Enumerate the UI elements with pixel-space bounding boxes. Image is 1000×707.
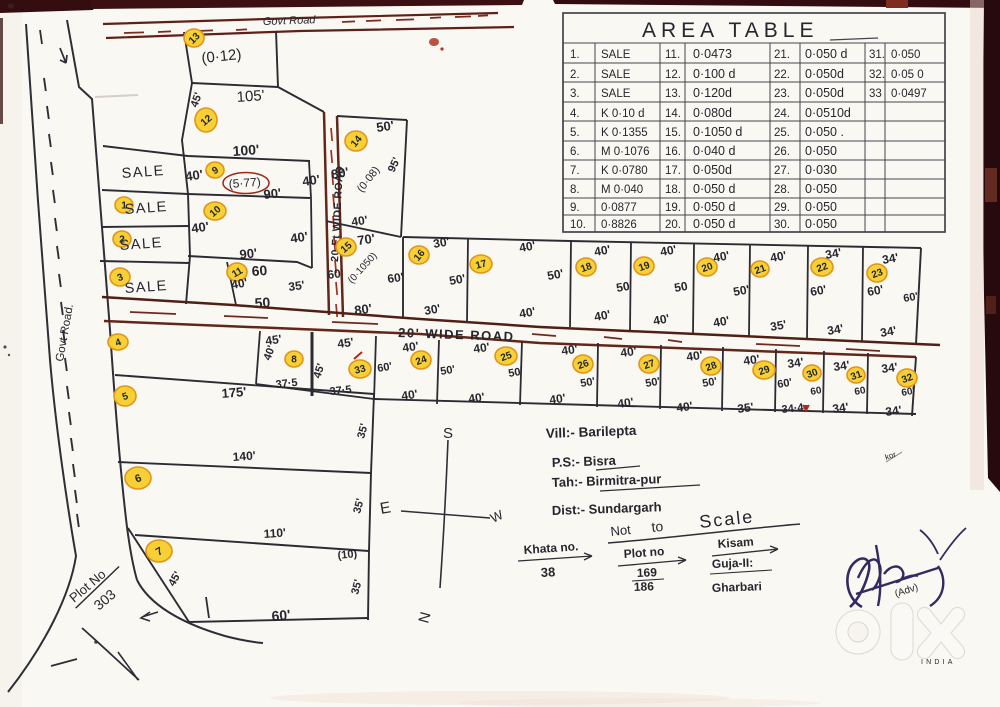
svg-text:0·050d: 0·050d [805,67,844,81]
svg-text:21.: 21. [774,49,790,61]
svg-text:0·05 0: 0·05 0 [891,69,924,81]
svg-text:60': 60' [866,282,885,299]
svg-text:INDIA: INDIA [921,659,956,666]
svg-text:28.: 28. [774,184,790,196]
svg-text:20.: 20. [665,219,681,231]
svg-text:35': 35' [287,278,305,294]
svg-text:P.S:- Bisra: P.S:- Bisra [552,453,617,470]
svg-text:0·050 .: 0·050 . [805,125,844,139]
svg-text:50': 50' [448,271,467,288]
svg-text:AREA TABLE: AREA TABLE [642,19,818,42]
svg-text:1.: 1. [570,49,580,61]
svg-text:0·100 d: 0·100 d [693,67,735,81]
svg-text:40': 40' [769,248,788,265]
svg-text:50: 50 [673,279,689,295]
svg-text:40': 40' [659,242,678,259]
svg-text:30.: 30. [774,219,790,231]
svg-text:18.: 18. [665,184,681,196]
svg-text:40': 40' [472,340,490,356]
svg-text:2.: 2. [570,69,580,81]
svg-text:35': 35' [736,400,754,416]
svg-text:0·0473: 0·0473 [693,47,732,61]
svg-text:40': 40' [560,342,578,358]
svg-text:15.: 15. [665,127,681,139]
svg-text:105': 105' [236,87,265,106]
svg-text:50': 50' [546,266,565,283]
svg-text:14.: 14. [665,108,681,120]
svg-text:70': 70' [356,231,375,248]
svg-text:SALE: SALE [121,163,165,182]
svg-text:60': 60' [901,386,916,399]
svg-text:34·4: 34·4 [781,402,805,416]
svg-text:Plot no: Plot no [623,544,665,561]
svg-text:40': 40' [518,304,537,321]
svg-text:140': 140' [232,448,256,464]
svg-text:60': 60' [809,282,828,299]
svg-text:50': 50' [375,118,394,135]
svg-text:40': 40' [518,238,537,255]
svg-text:SALE: SALE [601,49,631,61]
svg-text:34': 34' [786,355,804,371]
svg-text:35': 35' [769,317,788,334]
svg-text:K 0·10 d: K 0·10 d [601,108,644,120]
svg-text:175': 175' [221,384,247,401]
svg-text:38: 38 [540,564,555,580]
svg-text:40': 40' [619,344,637,360]
svg-text:29.: 29. [774,202,790,214]
svg-text:Kisam: Kisam [717,535,754,551]
svg-text:16.: 16. [665,146,681,158]
svg-text:22.: 22. [774,69,790,81]
svg-text:SALE: SALE [601,69,631,81]
svg-text:90': 90' [239,245,258,262]
svg-text:0·050: 0·050 [805,200,837,214]
svg-text:26.: 26. [774,146,790,158]
svg-text:40': 40' [190,219,209,236]
svg-text:0·050: 0·050 [805,182,837,196]
svg-text:40': 40' [301,172,320,189]
svg-text:60': 60' [386,270,404,286]
svg-text:12.: 12. [665,69,681,81]
svg-text:40': 40' [685,348,703,364]
svg-text:40': 40' [467,390,485,406]
svg-text:M 0·1076: M 0·1076 [601,146,650,158]
svg-text:6.: 6. [570,146,580,158]
svg-text:(10): (10) [337,548,358,562]
svg-text:80': 80' [330,164,350,182]
svg-text:24.: 24. [774,108,790,120]
svg-text:0·030: 0·030 [805,163,837,177]
svg-text:0·050: 0·050 [805,217,837,231]
svg-text:0·040 d: 0·040 d [693,144,735,158]
svg-text:40': 40' [548,391,566,407]
svg-text:Vill:- Barilepta: Vill:- Barilepta [546,423,637,441]
svg-text:50: 50 [615,279,631,295]
svg-text:13.: 13. [665,88,681,100]
svg-text:40': 40' [400,387,418,403]
svg-text:37·5: 37·5 [329,384,352,398]
svg-text:S: S [443,425,453,442]
svg-text:40': 40' [616,395,634,411]
svg-text:8: 8 [291,355,297,366]
svg-text:23.: 23. [774,88,790,100]
svg-text:110': 110' [263,525,286,541]
svg-text:Guja-II:: Guja-II: [712,556,754,571]
svg-text:40': 40' [712,313,731,330]
svg-text:0·1050 d: 0·1050 d [693,125,742,139]
svg-text:40': 40' [652,311,671,328]
svg-text:33: 33 [869,88,882,100]
svg-text:40': 40' [350,213,368,229]
svg-text:0·050: 0·050 [805,144,837,158]
svg-text:10.: 10. [570,219,586,231]
svg-text:169: 169 [637,565,658,580]
svg-text:50': 50' [732,282,751,299]
svg-text:0·8826: 0·8826 [601,219,637,231]
svg-text:0·0877: 0·0877 [601,202,637,214]
svg-text:0·050 d: 0·050 d [693,217,735,231]
svg-text:0·0497: 0·0497 [891,88,927,100]
svg-text:60: 60 [251,262,268,279]
svg-text:SALE: SALE [601,88,631,100]
svg-text:34': 34' [880,360,898,376]
svg-text:5.: 5. [570,127,580,139]
svg-text:40': 40' [289,229,308,246]
svg-text:Govt Road: Govt Road [263,14,317,28]
svg-text:0·050 d: 0·050 d [805,47,847,61]
svg-text:19.: 19. [665,202,681,214]
svg-text:K 0·1355: K 0·1355 [601,127,648,139]
svg-text:0·0510d: 0·0510d [805,106,851,120]
svg-text:37·5: 37·5 [275,377,298,391]
svg-text:40': 40' [593,242,612,259]
svg-text:60': 60' [326,266,344,282]
svg-text:31.: 31. [869,49,885,61]
svg-text:40': 40' [675,399,693,415]
svg-text:M 0·040: M 0·040 [601,184,643,196]
svg-text:0·050 d: 0·050 d [693,182,735,196]
svg-text:to: to [651,518,664,535]
svg-text:27.: 27. [774,165,790,177]
svg-text:40': 40' [184,167,203,184]
svg-text:34': 34' [831,400,849,416]
svg-text:186: 186 [634,579,655,594]
svg-text:11.: 11. [665,49,680,61]
svg-text:30': 30' [423,301,442,318]
svg-text:4.: 4. [570,108,580,120]
svg-text:40': 40' [230,275,249,292]
svg-text:SALE: SALE [124,278,168,297]
svg-text:34': 34' [881,250,900,267]
svg-text:0·050d: 0·050d [693,163,732,177]
svg-text:25.: 25. [774,127,790,139]
svg-text:0·050: 0·050 [891,49,920,61]
svg-text:60': 60' [271,606,291,624]
svg-text:34': 34' [884,403,902,419]
svg-text:34': 34' [879,323,898,340]
svg-text:40': 40' [712,248,731,265]
svg-text:34': 34' [824,245,843,262]
svg-text:SALE: SALE [119,235,163,254]
svg-text:0·080d: 0·080d [693,106,732,120]
svg-text:Not: Not [610,522,632,539]
svg-text:0·120d: 0·120d [693,86,732,100]
svg-text:34': 34' [826,321,845,338]
svg-text:3.: 3. [570,88,580,100]
svg-text:30': 30' [432,234,451,251]
svg-text:0·050 d: 0·050 d [693,200,735,214]
svg-text:7.: 7. [570,165,580,177]
svg-text:40': 40' [593,307,612,324]
svg-text:K 0·0780: K 0·0780 [601,165,648,177]
svg-text:17.: 17. [665,165,681,177]
svg-text:9.: 9. [570,202,580,214]
svg-text:(5·77): (5·77) [228,175,261,191]
svg-text:100': 100' [232,141,260,159]
svg-text:Gharbari: Gharbari [712,579,762,595]
svg-text:45': 45' [336,335,354,351]
svg-text:0·050d: 0·050d [805,86,844,100]
svg-text:8.: 8. [570,184,580,196]
svg-text:32.: 32. [869,69,885,81]
svg-text:SALE: SALE [124,199,168,218]
